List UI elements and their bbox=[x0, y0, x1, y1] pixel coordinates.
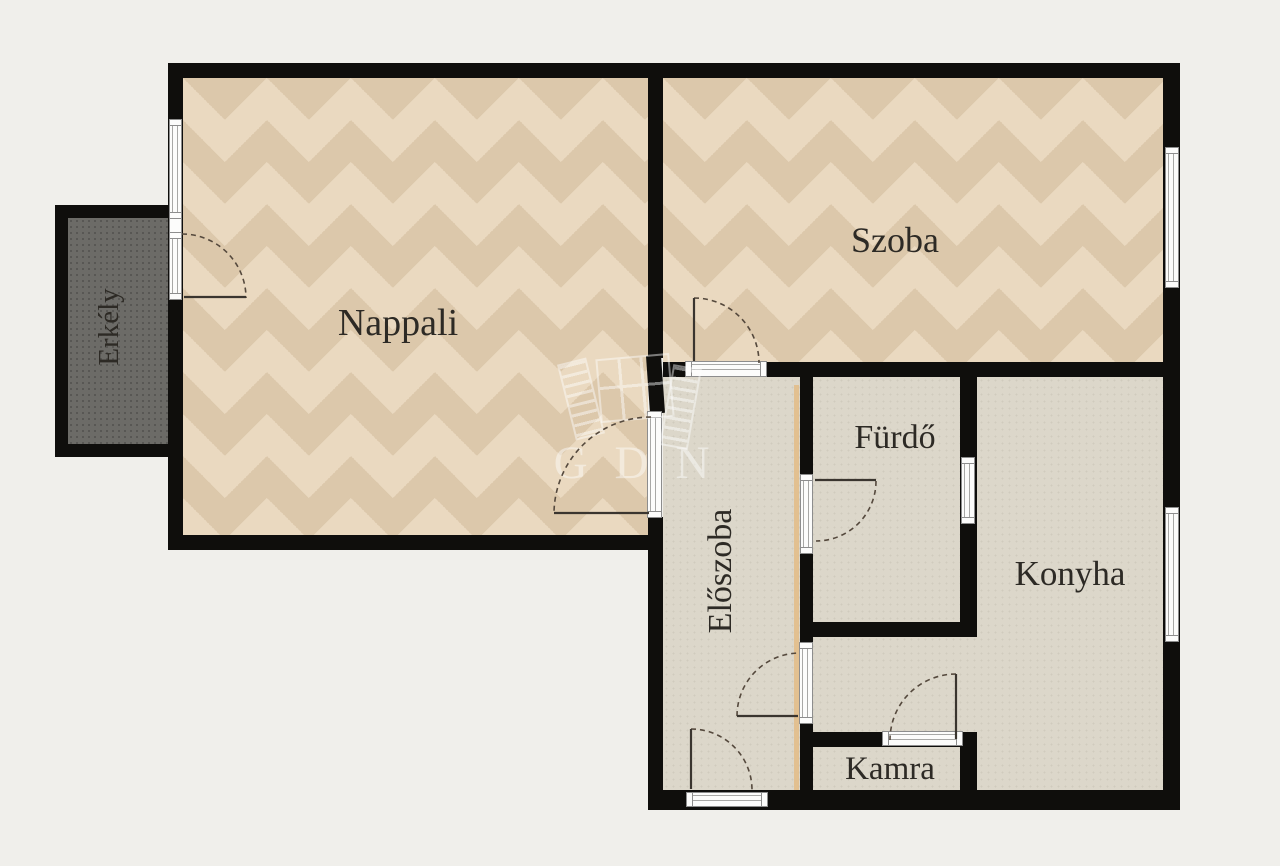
wall-balcony-top bbox=[55, 205, 170, 218]
wall-balcony-bottom bbox=[55, 444, 170, 457]
room-label-furdo: Fürdő bbox=[795, 419, 995, 456]
door-frame-furdo bbox=[800, 475, 813, 553]
wall-nappali-szoba-divider bbox=[648, 78, 663, 358]
room-label-kamra: Kamra bbox=[790, 751, 990, 787]
room-label-nappali: Nappali bbox=[298, 303, 498, 345]
window-jamb-block bbox=[169, 218, 182, 233]
wall-furdo-bottom bbox=[800, 622, 977, 637]
watermark-logo-grid bbox=[595, 353, 674, 423]
wall-balcony-left bbox=[55, 205, 68, 457]
window-nappali-left bbox=[169, 120, 182, 218]
wall-top bbox=[168, 63, 1180, 78]
wall-eloszoba-left bbox=[648, 517, 663, 810]
window-szoba-right bbox=[1165, 148, 1179, 287]
room-label-konyha: Konyha bbox=[970, 555, 1170, 594]
door-frame-kamra bbox=[883, 731, 962, 746]
door-frame-entrance bbox=[687, 792, 767, 807]
floor-plan: GDN Nappali Szoba Erkély Előszoba Fürdő … bbox=[0, 0, 1280, 866]
door-frame-balcony bbox=[169, 233, 182, 299]
door-frame-eloszoba-passage bbox=[799, 643, 813, 723]
room-label-erkely: Erkély bbox=[94, 229, 130, 425]
room-label-eloszoba: Előszoba bbox=[702, 471, 742, 671]
wall-nappali-bottom bbox=[168, 535, 663, 550]
window-furdo-konyha bbox=[961, 458, 975, 523]
room-label-szoba: Szoba bbox=[795, 221, 995, 261]
